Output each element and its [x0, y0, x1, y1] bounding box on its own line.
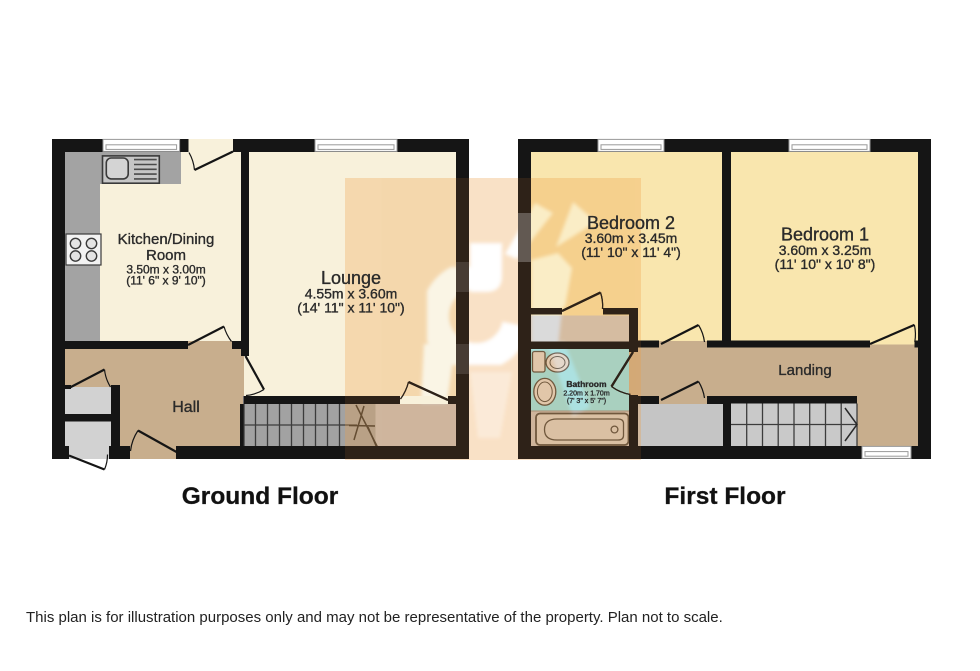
svg-text:(11' 10" x 11' 4"): (11' 10" x 11' 4"): [581, 244, 681, 260]
svg-text:Bathroom: Bathroom: [566, 379, 607, 389]
svg-text:(11' 10" x 10' 8"): (11' 10" x 10' 8"): [775, 256, 876, 272]
svg-text:This plan is for illustration: This plan is for illustration purposes o…: [26, 609, 723, 626]
svg-text:Room: Room: [146, 247, 186, 264]
svg-text:Landing: Landing: [778, 362, 831, 379]
svg-text:Hall: Hall: [172, 399, 200, 416]
svg-text:First Floor: First Floor: [664, 483, 786, 510]
svg-text:(14' 11" x 11' 10"): (14' 11" x 11' 10"): [297, 300, 404, 316]
svg-text:Kitchen/Dining: Kitchen/Dining: [118, 231, 215, 248]
svg-text:(11' 6" x 9' 10"): (11' 6" x 9' 10"): [126, 274, 206, 288]
svg-text:2.20m x 1.70m: 2.20m x 1.70m: [563, 391, 609, 398]
svg-text:Ground Floor: Ground Floor: [182, 483, 339, 510]
svg-text:(7' 3" x 5' 7"): (7' 3" x 5' 7"): [567, 398, 606, 405]
